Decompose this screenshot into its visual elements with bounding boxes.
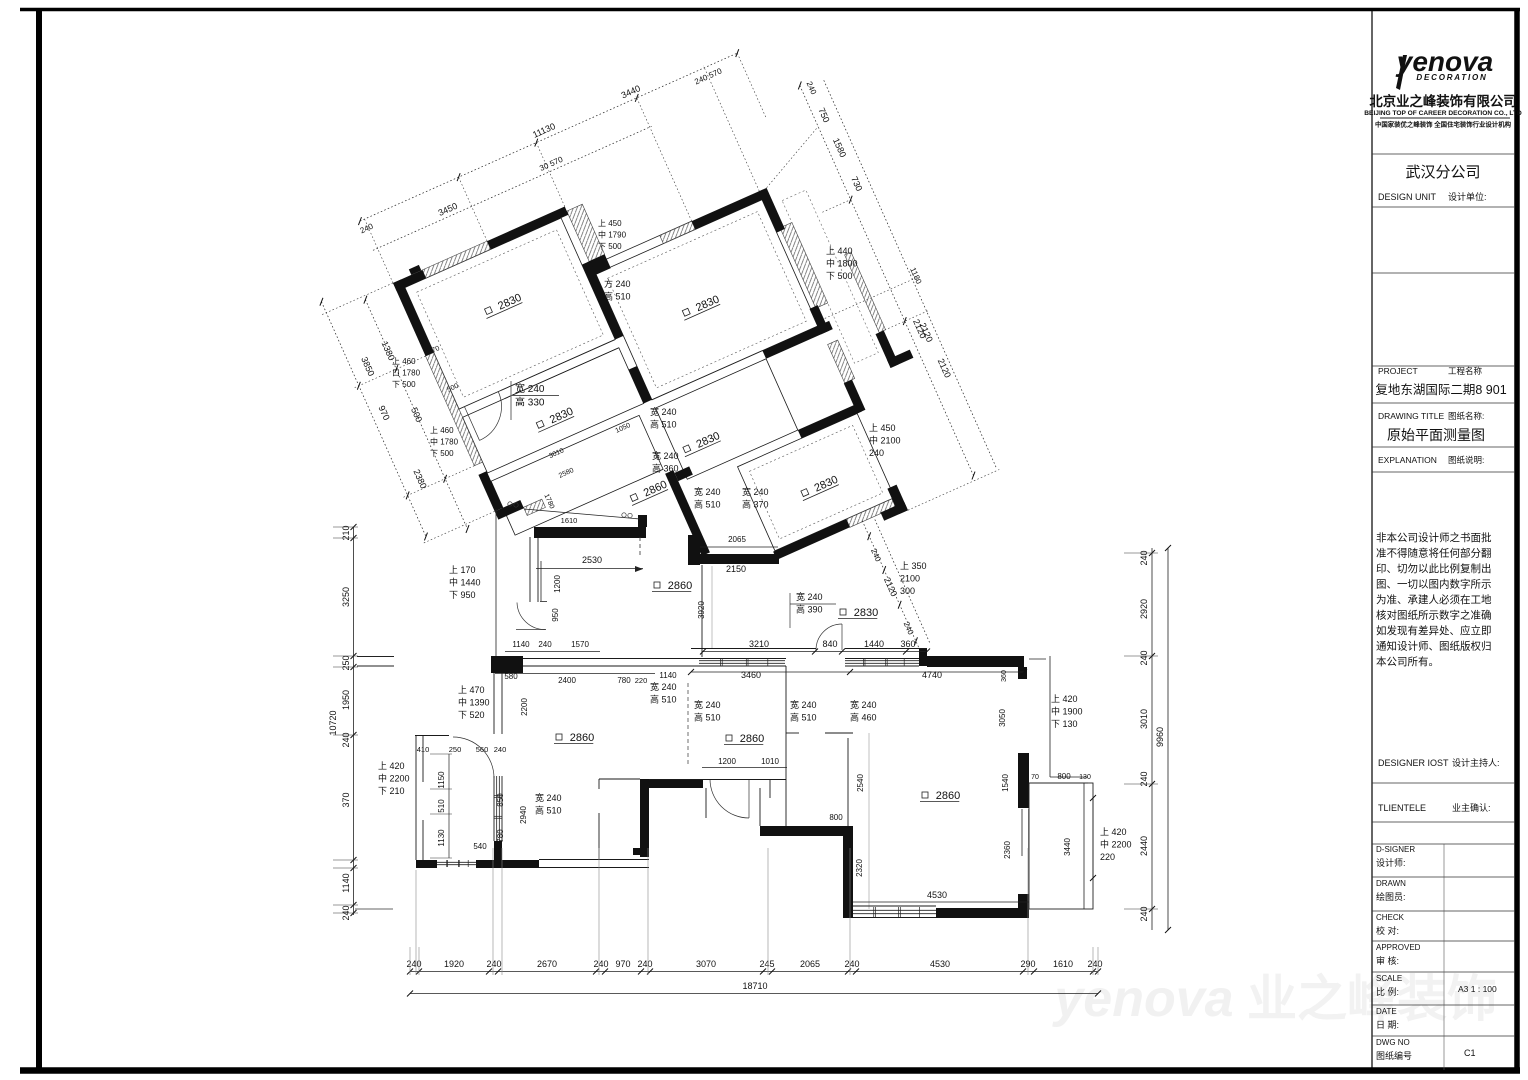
svg-text:设计主持人:: 设计主持人: (1452, 757, 1500, 768)
svg-text:EXPLANATION: EXPLANATION (1378, 455, 1437, 465)
svg-text:中 2200: 中 2200 (1100, 839, 1132, 850)
svg-text:1440: 1440 (864, 639, 884, 649)
svg-text:准不得随意将任何部分翻: 准不得随意将任何部分翻 (1376, 547, 1492, 560)
svg-text:3050: 3050 (998, 709, 1007, 727)
svg-text:3210: 3210 (749, 639, 769, 649)
svg-text:360: 360 (900, 639, 915, 649)
svg-text:2530: 2530 (582, 555, 602, 565)
svg-text:250: 250 (341, 655, 351, 670)
svg-text:1150: 1150 (437, 771, 446, 789)
svg-text:3440: 3440 (1063, 838, 1072, 856)
svg-text:70: 70 (1031, 774, 1039, 781)
svg-text:240: 240 (538, 640, 552, 649)
svg-text:宽 240: 宽 240 (790, 699, 817, 710)
svg-text:SCALE: SCALE (1376, 974, 1402, 983)
svg-text:宽 240: 宽 240 (796, 591, 823, 602)
svg-text:高 390: 高 390 (796, 604, 823, 615)
svg-text:设计师:: 设计师: (1376, 857, 1406, 868)
svg-text:宽 240: 宽 240 (650, 406, 677, 417)
svg-text:3070: 3070 (696, 959, 716, 969)
svg-text:2860: 2860 (936, 790, 960, 802)
svg-text:审 核:: 审 核: (1376, 955, 1399, 966)
svg-text:宽 240: 宽 240 (652, 450, 679, 461)
svg-text:C1: C1 (1464, 1048, 1476, 1058)
svg-text:下 500: 下 500 (598, 242, 622, 251)
svg-text:高 510: 高 510 (650, 419, 677, 430)
svg-text:TLIENTELE: TLIENTELE (1378, 803, 1426, 813)
svg-text:中 1780: 中 1780 (430, 437, 459, 447)
svg-text:下 520: 下 520 (458, 710, 485, 720)
svg-text:1950: 1950 (341, 690, 351, 710)
svg-text:DESIGN UNIT: DESIGN UNIT (1378, 192, 1437, 202)
svg-text:yenova: yenova (1051, 970, 1233, 1028)
svg-text:220: 220 (635, 676, 648, 685)
svg-text:2200: 2200 (520, 698, 529, 716)
svg-text:2100: 2100 (900, 574, 920, 584)
svg-text:4530: 4530 (927, 890, 947, 900)
svg-text:240: 240 (1087, 959, 1102, 969)
svg-text:250: 250 (449, 745, 462, 754)
svg-text:240: 240 (486, 959, 501, 969)
svg-text:本公司所有。: 本公司所有。 (1376, 655, 1439, 668)
svg-text:宽 240: 宽 240 (515, 382, 545, 395)
svg-text:设计单位:: 设计单位: (1448, 191, 1487, 202)
svg-text:540: 540 (473, 842, 487, 851)
svg-text:2400: 2400 (558, 676, 576, 685)
svg-text:DESIGNER IOST: DESIGNER IOST (1378, 758, 1449, 768)
svg-text:3460: 3460 (741, 670, 761, 680)
svg-text:3920: 3920 (697, 601, 706, 619)
svg-text:300: 300 (900, 586, 915, 596)
svg-text:如发现有差异处、应立即: 如发现有差异处、应立即 (1376, 624, 1492, 637)
svg-text:3010: 3010 (1139, 709, 1149, 729)
svg-text:1610: 1610 (1053, 959, 1073, 969)
svg-text:1200: 1200 (718, 757, 736, 766)
svg-text:工程名称: 工程名称 (1448, 366, 1483, 376)
svg-text:240: 240 (869, 448, 884, 458)
svg-text:1140: 1140 (341, 873, 351, 892)
svg-text:9960: 9960 (1155, 727, 1165, 747)
svg-text:560: 560 (476, 745, 489, 754)
svg-text:2065: 2065 (728, 535, 746, 544)
svg-text:510: 510 (437, 799, 446, 813)
svg-text:A3 1 : 100: A3 1 : 100 (1458, 984, 1497, 994)
svg-text:上 450: 上 450 (598, 219, 622, 228)
svg-text:日 期:: 日 期: (1376, 1020, 1399, 1030)
svg-text:上 470: 上 470 (458, 685, 485, 695)
svg-text:1610: 1610 (561, 516, 578, 525)
svg-text:高 370: 高 370 (742, 499, 769, 510)
svg-text:绘图员:: 绘图员: (1376, 891, 1406, 902)
svg-text:2830: 2830 (854, 607, 878, 619)
svg-text:北京业之峰装饰有限公司: 北京业之峰装饰有限公司 (1369, 93, 1516, 109)
svg-text:中 2100: 中 2100 (869, 435, 901, 446)
svg-text:高 510: 高 510 (650, 694, 677, 705)
svg-text:580: 580 (504, 672, 518, 681)
svg-text:800: 800 (829, 813, 843, 822)
svg-text:宽 240: 宽 240 (850, 699, 877, 710)
svg-text:1130: 1130 (437, 829, 446, 847)
svg-text:2670: 2670 (537, 959, 557, 969)
svg-text:780: 780 (496, 829, 505, 843)
svg-text:970: 970 (615, 959, 630, 969)
svg-text:校 对:: 校 对: (1376, 925, 1399, 936)
svg-text:高 460: 高 460 (850, 712, 877, 723)
svg-text:1200: 1200 (553, 575, 562, 593)
svg-text:780: 780 (617, 676, 631, 685)
svg-text:高 510: 高 510 (694, 499, 721, 510)
svg-text:BEIJING TOP OF CAREER DECORATI: BEIJING TOP OF CAREER DECORATION CO., LT… (1364, 110, 1522, 117)
svg-text:950: 950 (551, 608, 560, 622)
svg-text:2860: 2860 (668, 580, 692, 592)
svg-text:业主确认:: 业主确认: (1452, 802, 1491, 813)
svg-text:下 210: 下 210 (378, 786, 405, 796)
svg-text:上 420: 上 420 (1100, 827, 1127, 837)
svg-text:800: 800 (1057, 772, 1071, 781)
svg-text:图纸说明:: 图纸说明: (1448, 455, 1484, 465)
svg-text:CHECK: CHECK (1376, 913, 1405, 922)
svg-text:3250: 3250 (341, 587, 351, 607)
svg-text:中 1900: 中 1900 (1051, 706, 1083, 717)
svg-text:上 460: 上 460 (392, 357, 416, 366)
svg-text:D-SIGNER: D-SIGNER (1376, 845, 1415, 854)
svg-text:高 360: 高 360 (652, 463, 679, 474)
svg-text:240: 240 (593, 959, 608, 969)
svg-text:840: 840 (822, 639, 837, 649)
svg-text:中 1390: 中 1390 (458, 697, 490, 708)
svg-text:原始平面测量图: 原始平面测量图 (1387, 427, 1485, 443)
svg-text:DECORATION: DECORATION (1416, 73, 1487, 82)
svg-text:高 510: 高 510 (535, 805, 562, 816)
svg-text:下 950: 下 950 (449, 590, 476, 600)
svg-text:370: 370 (341, 792, 351, 807)
svg-text:上 170: 上 170 (449, 565, 476, 575)
svg-text:2360: 2360 (1003, 841, 1012, 859)
svg-text:上 440: 上 440 (826, 246, 853, 256)
svg-text:高 510: 高 510 (694, 712, 721, 723)
svg-text:比 例:: 比 例: (1376, 986, 1399, 997)
svg-text:中 1800: 中 1800 (826, 258, 858, 269)
svg-text:DWG NO: DWG NO (1376, 1038, 1410, 1047)
svg-text:下 500: 下 500 (392, 380, 416, 389)
svg-text:方 240: 方 240 (604, 278, 631, 289)
svg-text:130: 130 (1079, 774, 1091, 781)
svg-text:口 1780: 口 1780 (392, 369, 421, 378)
svg-text:下 130: 下 130 (1051, 719, 1078, 729)
svg-text:1010: 1010 (761, 757, 779, 766)
svg-text:245: 245 (759, 959, 774, 969)
svg-text:850: 850 (496, 793, 505, 807)
svg-text:高 330: 高 330 (515, 396, 545, 409)
svg-text:下 500: 下 500 (826, 271, 853, 281)
svg-text:印、切勿以此比例复制出: 印、切勿以此比例复制出 (1376, 562, 1492, 575)
svg-text:为准、承建人必须在工地: 为准、承建人必须在工地 (1376, 593, 1492, 606)
svg-text:4740: 4740 (922, 670, 942, 680)
svg-text:宽 240: 宽 240 (650, 681, 677, 692)
svg-text:1570: 1570 (571, 640, 589, 649)
svg-text:图纸名称:: 图纸名称: (1448, 411, 1484, 421)
svg-text:上 450: 上 450 (869, 423, 896, 433)
svg-text:中国家装优之峰装饰 全国住宅装饰行业设计机构: 中国家装优之峰装饰 全国住宅装饰行业设计机构 (1375, 120, 1512, 129)
svg-text:220: 220 (1100, 852, 1115, 862)
svg-text:宽 240: 宽 240 (742, 486, 769, 497)
svg-text:上 420: 上 420 (378, 761, 405, 771)
svg-text:图纸编号: 图纸编号 (1376, 1050, 1412, 1061)
svg-text:DRAWING TITLE: DRAWING TITLE (1378, 411, 1444, 421)
svg-text:2940: 2940 (519, 806, 528, 824)
svg-text:武汉分公司: 武汉分公司 (1405, 164, 1480, 181)
svg-text:复地东湖国际二期8 901: 复地东湖国际二期8 901 (1375, 382, 1506, 397)
svg-text:APPROVED: APPROVED (1376, 943, 1421, 952)
svg-text:2920: 2920 (1139, 599, 1149, 619)
svg-text:高 510: 高 510 (790, 712, 817, 723)
svg-text:通知设计师、图纸版权归: 通知设计师、图纸版权归 (1376, 640, 1492, 653)
svg-text:中 1440: 中 1440 (449, 577, 481, 588)
svg-text:中 1790: 中 1790 (598, 230, 627, 240)
svg-text:2540: 2540 (856, 774, 865, 792)
svg-text:非本公司设计师之书面批: 非本公司设计师之书面批 (1376, 531, 1492, 544)
svg-text:1920: 1920 (444, 959, 464, 969)
svg-text:中 2200: 中 2200 (378, 773, 410, 784)
svg-text:上 460: 上 460 (430, 426, 454, 435)
svg-text:2320: 2320 (855, 859, 864, 877)
svg-text:高 510: 高 510 (604, 291, 631, 302)
svg-text:18710: 18710 (742, 981, 767, 991)
svg-text:宽 240: 宽 240 (694, 486, 721, 497)
svg-text:1140: 1140 (512, 640, 530, 649)
svg-text:PROJECT: PROJECT (1378, 366, 1418, 376)
svg-text:240: 240 (844, 959, 859, 969)
svg-text:240: 240 (494, 745, 507, 754)
svg-text:上 350: 上 350 (900, 561, 927, 571)
svg-text:DATE: DATE (1376, 1007, 1397, 1016)
svg-text:2150: 2150 (726, 564, 746, 574)
svg-text:图、一切以图内数字所示: 图、一切以图内数字所示 (1376, 578, 1492, 591)
svg-text:10720: 10720 (328, 710, 338, 735)
svg-text:DRAWN: DRAWN (1376, 879, 1406, 888)
svg-text:核对图纸所示数字之准确: 核对图纸所示数字之准确 (1376, 609, 1492, 622)
svg-text:宽 240: 宽 240 (694, 699, 721, 710)
svg-text:上 420: 上 420 (1051, 694, 1078, 704)
svg-text:240: 240 (637, 959, 652, 969)
svg-text:2440: 2440 (1139, 836, 1149, 856)
svg-text:240: 240 (1139, 650, 1149, 665)
svg-text:4530: 4530 (930, 959, 950, 969)
svg-text:宽 240: 宽 240 (535, 792, 562, 803)
svg-text:下 500: 下 500 (430, 449, 454, 458)
svg-text:1140: 1140 (659, 671, 677, 680)
svg-text:1540: 1540 (1001, 774, 1010, 792)
svg-text:2860: 2860 (570, 732, 594, 744)
svg-text:2065: 2065 (800, 959, 820, 969)
svg-text:2860: 2860 (740, 733, 764, 745)
